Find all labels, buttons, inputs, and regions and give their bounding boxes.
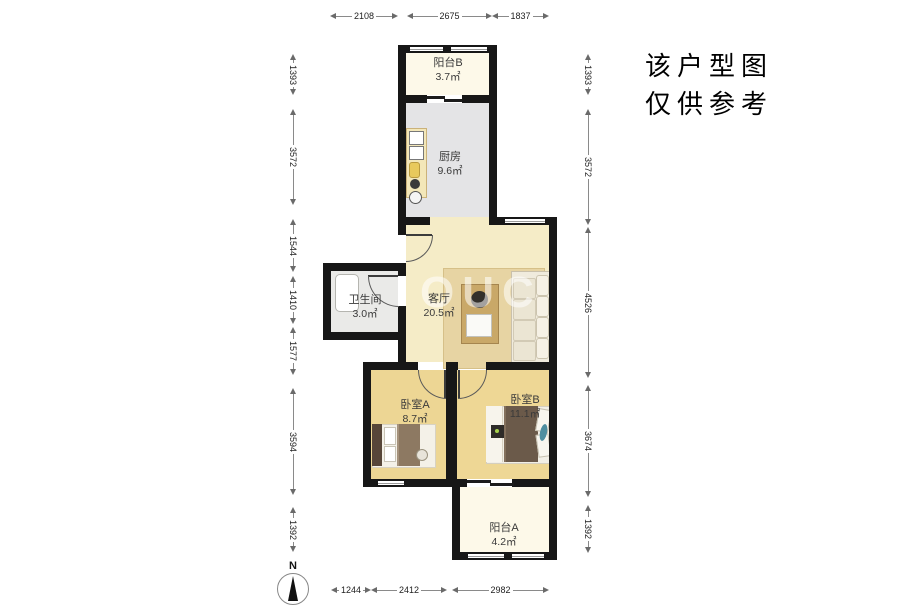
wall: [398, 263, 406, 276]
dim-value: 1410: [288, 288, 298, 312]
dim-left-4: 1577: [287, 327, 299, 375]
arrow-down-icon: [585, 547, 591, 553]
sofa-back-cushion: [536, 338, 549, 359]
arrow-down-icon: [585, 219, 591, 225]
wall: [486, 362, 557, 370]
arrow-down-icon: [290, 89, 296, 95]
dim-top-0: 2108: [330, 10, 398, 22]
wall: [549, 217, 557, 560]
wall: [446, 362, 457, 487]
bed-a-headboard: [372, 424, 382, 466]
room-name: 阳台A: [463, 521, 545, 535]
sliding-door: [467, 480, 491, 483]
wall: [363, 362, 371, 487]
dim-value: 3594: [288, 429, 298, 453]
dim-top-2: 1837: [492, 10, 549, 22]
arrow-down-icon: [290, 369, 296, 375]
compass-north-label: N: [274, 560, 312, 572]
dim-bottom-0: 1244: [331, 584, 371, 596]
dim-right-3: 3674: [582, 385, 594, 497]
window: [505, 219, 545, 223]
arrow-down-icon: [290, 318, 296, 324]
dim-value: 3572: [583, 155, 593, 179]
dim-left-6: 1392: [287, 507, 299, 552]
wall: [462, 95, 497, 103]
bed-a-deco-icon: [416, 449, 428, 461]
sofa-seat-cushion: [513, 341, 536, 361]
dim-value: 2982: [488, 585, 512, 595]
dim-right-0: 1393: [582, 54, 594, 95]
wall: [398, 45, 406, 235]
wall: [489, 45, 497, 225]
sliding-door: [490, 483, 514, 486]
dim-left-3: 1410: [287, 276, 299, 324]
dim-left-5: 3594: [287, 388, 299, 495]
wall: [512, 479, 557, 487]
dim-bottom-1: 2412: [371, 584, 447, 596]
dim-right-1: 3572: [582, 109, 594, 225]
room-area: 3.0㎡: [330, 307, 400, 321]
wall: [452, 487, 460, 560]
window: [451, 47, 487, 51]
window: [410, 47, 443, 51]
room-name: 厨房: [412, 150, 488, 164]
disclaimer-note: 该户型图 仅供参考: [645, 48, 773, 124]
arrow-right-icon: [543, 13, 549, 19]
kitchen-appliance-icon: [409, 131, 424, 145]
dim-value: 1393: [288, 62, 298, 86]
dim-value: 3674: [583, 429, 593, 453]
dim-value: 2412: [397, 585, 421, 595]
room-name: 卧室B: [493, 393, 557, 407]
arrow-right-icon: [543, 587, 549, 593]
dim-value: 1393: [583, 62, 593, 86]
dim-value: 1577: [288, 339, 298, 363]
dim-value: 2675: [437, 11, 461, 21]
disclaimer-line-1: 该户型图: [645, 48, 773, 86]
arrow-down-icon: [290, 489, 296, 495]
compass-needle-icon: [288, 576, 298, 601]
wall: [363, 362, 418, 370]
window: [468, 554, 504, 558]
wall: [398, 217, 430, 225]
wall: [446, 479, 467, 487]
bed-b-tv-light-icon: [495, 429, 499, 433]
dim-left-1: 3572: [287, 109, 299, 205]
arrow-right-icon: [392, 13, 398, 19]
dim-left-0: 1393: [287, 54, 299, 95]
dim-top-1: 2675: [407, 10, 492, 22]
room-label-kitchen: 厨房 9.6㎡: [412, 150, 488, 178]
floorplan-canvas: OUC 阳台B 3.: [0, 0, 914, 604]
arrow-down-icon: [290, 546, 296, 552]
sliding-door: [427, 96, 445, 99]
wall: [398, 95, 427, 103]
bed-a-blanket: [397, 424, 420, 466]
room-area: 9.6㎡: [412, 164, 488, 178]
kitchen-pot-icon: [409, 191, 422, 204]
room-label-living-room: 客厅 20.5㎡: [398, 292, 480, 320]
room-label-bathroom: 卫生间 3.0㎡: [330, 293, 400, 321]
kitchen-stove-icon: [410, 179, 420, 189]
room-area: 4.2㎡: [463, 535, 545, 549]
arrow-down-icon: [585, 372, 591, 378]
room-name: 阳台B: [407, 56, 489, 70]
dim-value: 1392: [288, 517, 298, 541]
dim-left-2: 1544: [287, 219, 299, 272]
compass: N: [274, 560, 312, 605]
dim-value: 1244: [339, 585, 363, 595]
room-label-balcony-a: 阳台A 4.2㎡: [463, 521, 545, 549]
room-label-balcony-b: 阳台B 3.7㎡: [407, 56, 489, 84]
room-area: 11.1㎡: [493, 407, 557, 421]
arrow-down-icon: [290, 199, 296, 205]
sofa-back-cushion: [536, 317, 549, 338]
sliding-door: [444, 99, 462, 102]
window: [378, 481, 404, 485]
wall: [323, 332, 406, 340]
arrow-right-icon: [441, 587, 447, 593]
compass-circle: [277, 573, 309, 605]
wall: [323, 263, 406, 271]
room-name: 卫生间: [330, 293, 400, 307]
dim-value: 1544: [288, 233, 298, 257]
dim-right-4: 1392: [582, 505, 594, 553]
room-area: 20.5㎡: [398, 306, 480, 320]
dim-value: 3572: [288, 145, 298, 169]
room-area: 8.7㎡: [383, 412, 447, 426]
room-name: 客厅: [398, 292, 480, 306]
room-name: 卧室A: [383, 398, 447, 412]
arrow-down-icon: [585, 89, 591, 95]
arrow-down-icon: [290, 266, 296, 272]
window: [512, 554, 544, 558]
arrow-down-icon: [585, 491, 591, 497]
bed-a-pillow: [384, 446, 396, 462]
dim-value: 1392: [583, 517, 593, 541]
disclaimer-line-2: 仅供参考: [645, 86, 773, 124]
wall: [398, 340, 406, 362]
dim-value: 2108: [352, 11, 376, 21]
room-area: 3.7㎡: [407, 70, 489, 84]
wall: [363, 479, 452, 487]
dim-bottom-2: 2982: [452, 584, 549, 596]
bed-a-pillow: [384, 427, 396, 445]
dim-value: 4526: [583, 290, 593, 314]
dim-right-2: 4526: [582, 227, 594, 378]
sofa-seat-cushion: [513, 320, 536, 341]
room-label-bedroom-b: 卧室B 11.1㎡: [493, 393, 557, 421]
room-label-bedroom-a: 卧室A 8.7㎡: [383, 398, 447, 426]
dim-value: 1837: [508, 11, 532, 21]
